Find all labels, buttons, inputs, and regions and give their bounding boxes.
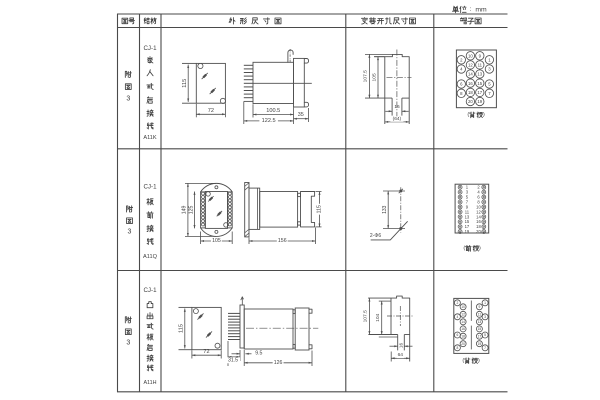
svg-text:16: 16 (461, 327, 465, 331)
svg-text:A11Q: A11Q (143, 254, 158, 260)
svg-text:CJ-1: CJ-1 (143, 184, 157, 191)
svg-text:(: ( (462, 358, 464, 364)
svg-text:(: ( (467, 112, 469, 118)
svg-text:72: 72 (208, 108, 214, 114)
svg-text:6: 6 (456, 333, 458, 337)
svg-text:CJ-1: CJ-1 (143, 45, 157, 52)
svg-text:105: 105 (212, 238, 221, 244)
svg-text:16: 16 (394, 104, 400, 110)
svg-text:15: 15 (478, 327, 482, 331)
svg-text:72: 72 (203, 349, 209, 355)
svg-text:9.5: 9.5 (255, 351, 262, 357)
svg-text:): ) (479, 245, 481, 251)
svg-text:2: 2 (456, 301, 458, 305)
svg-text:19: 19 (477, 99, 482, 104)
svg-text:115: 115 (317, 205, 323, 213)
svg-text:126: 126 (274, 360, 283, 366)
svg-text:): ) (478, 358, 480, 364)
svg-text:104: 104 (375, 313, 381, 321)
svg-text:19: 19 (465, 229, 470, 234)
svg-text:20: 20 (461, 342, 465, 346)
svg-text:(: ( (463, 245, 465, 251)
svg-text:107.5: 107.5 (363, 310, 369, 323)
svg-text:100.5: 100.5 (266, 108, 280, 114)
svg-text:9: 9 (478, 305, 480, 309)
svg-text:125: 125 (188, 206, 194, 215)
svg-text:14: 14 (461, 320, 465, 324)
svg-text:12: 12 (468, 63, 473, 68)
svg-text:13: 13 (478, 320, 482, 324)
svg-text:20: 20 (468, 99, 473, 104)
svg-text:20: 20 (476, 229, 481, 234)
svg-text:A11H: A11H (143, 380, 156, 386)
svg-text:): ) (483, 112, 485, 118)
svg-text:16: 16 (468, 81, 473, 86)
svg-text:19: 19 (478, 342, 482, 346)
svg-text:7: 7 (484, 346, 486, 350)
svg-text:18: 18 (468, 90, 473, 95)
svg-text:107.5: 107.5 (363, 70, 369, 83)
svg-text:11: 11 (478, 312, 482, 316)
svg-text:mm: mm (475, 6, 487, 13)
svg-text:CJ-1: CJ-1 (143, 287, 157, 294)
svg-text:35: 35 (298, 112, 304, 118)
svg-text:14: 14 (468, 72, 473, 77)
svg-text:133: 133 (382, 205, 388, 214)
svg-text:12: 12 (461, 312, 465, 316)
svg-text:17: 17 (478, 334, 482, 338)
svg-text:64: 64 (398, 352, 404, 358)
svg-text:2-Φ6: 2-Φ6 (370, 233, 381, 239)
svg-text:1: 1 (484, 301, 486, 305)
svg-text:149: 149 (182, 205, 188, 214)
svg-text:4: 4 (456, 315, 458, 319)
svg-text:31.5: 31.5 (228, 358, 238, 364)
svg-text:3: 3 (128, 229, 132, 236)
svg-text:16: 16 (399, 343, 404, 349)
svg-text:3: 3 (484, 315, 486, 319)
svg-text::: : (470, 6, 472, 13)
svg-text:115: 115 (182, 79, 188, 88)
svg-text:15: 15 (477, 81, 482, 86)
svg-text:11: 11 (478, 63, 483, 68)
svg-text:10: 10 (468, 54, 473, 59)
svg-text:8: 8 (456, 346, 458, 350)
svg-text:10: 10 (461, 305, 465, 309)
svg-text:A11K: A11K (143, 135, 157, 141)
svg-text:18: 18 (461, 334, 465, 338)
svg-text:122.5: 122.5 (262, 118, 276, 124)
svg-text:156: 156 (278, 238, 287, 244)
svg-text:13: 13 (477, 72, 482, 77)
svg-text:105: 105 (371, 73, 377, 81)
svg-text:3: 3 (126, 340, 130, 347)
svg-text:17: 17 (477, 90, 482, 95)
svg-text:3: 3 (126, 95, 130, 102)
svg-text:(64): (64) (393, 116, 402, 122)
svg-text:115: 115 (179, 324, 185, 333)
svg-text:5: 5 (484, 333, 486, 337)
